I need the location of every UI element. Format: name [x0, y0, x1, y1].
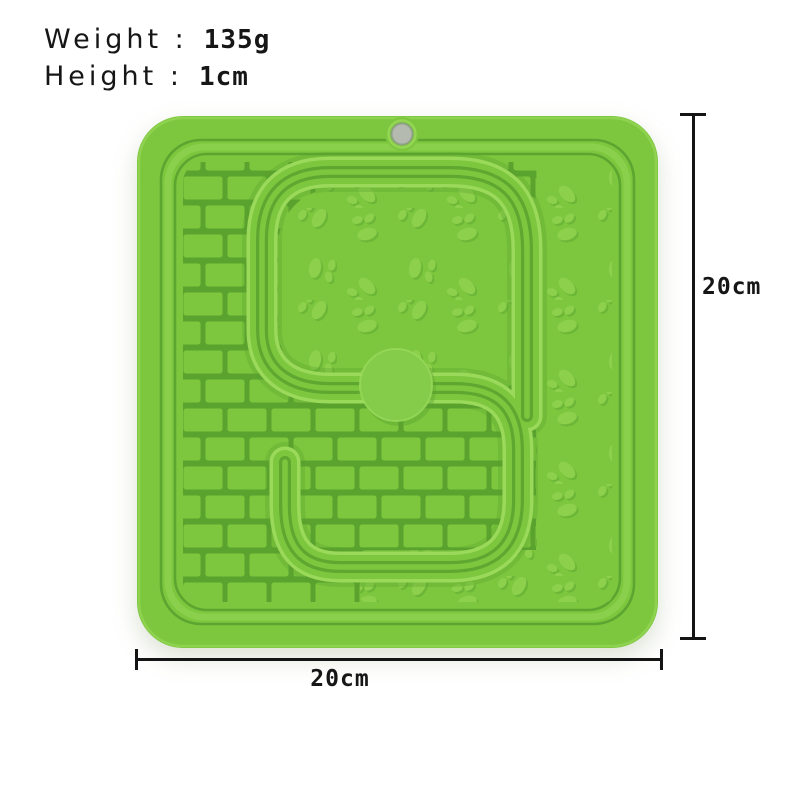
hanging-hole-icon	[385, 117, 419, 151]
spec-block: Weight : 135g Height : 1cm	[44, 24, 270, 92]
side-dimension-label: 20cm	[702, 274, 761, 300]
weight-label: Weight :	[44, 24, 188, 55]
weight-row: Weight : 135g	[44, 24, 270, 55]
height-value: 1cm	[199, 62, 249, 92]
width-dimension-cap-left	[135, 649, 138, 670]
product-photo-scene: Weight : 135g Height : 1cm	[0, 0, 800, 800]
width-dimension-line	[136, 658, 663, 661]
width-dimension-cap-right	[660, 649, 663, 670]
height-dimension-cap-bottom	[680, 637, 706, 640]
height-dimension-line	[692, 114, 695, 640]
lick-mat-image	[137, 116, 658, 648]
height-dimension-cap-top	[680, 113, 706, 116]
height-row: Height : 1cm	[44, 61, 270, 92]
height-label: Height :	[44, 61, 183, 92]
weight-value: 135g	[204, 25, 271, 55]
width-dimension-label: 20cm	[280, 666, 400, 692]
